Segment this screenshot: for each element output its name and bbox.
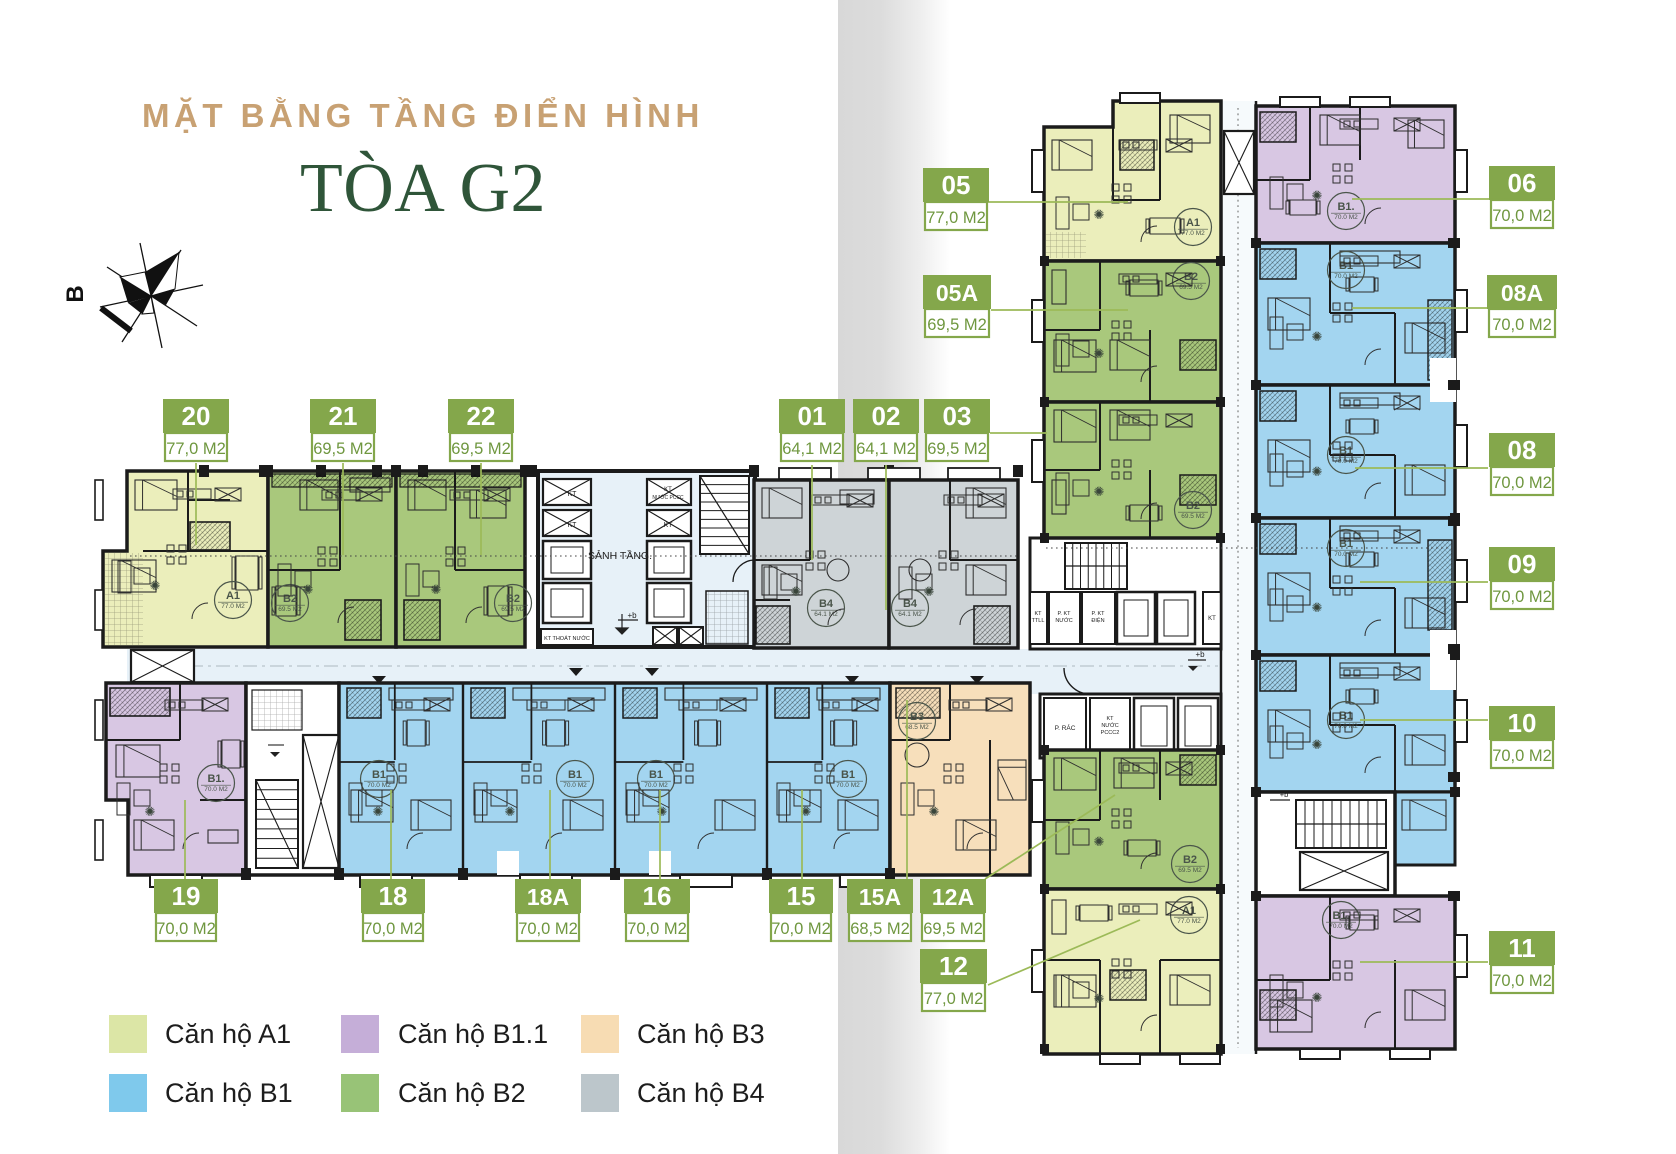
svg-text:70.0 M2: 70.0 M2 (1334, 723, 1358, 730)
svg-text:B1: B1 (568, 769, 582, 781)
svg-text:64,1 M2: 64,1 M2 (856, 440, 916, 458)
svg-text:21: 21 (329, 401, 358, 431)
svg-text:SẢNH TẦNG.: SẢNH TẦNG. (588, 549, 652, 562)
svg-text:B1: B1 (841, 769, 855, 781)
svg-text:P. KT: P. KT (1091, 611, 1105, 617)
svg-text:✺: ✺ (657, 804, 668, 819)
svg-text:✺: ✺ (1094, 346, 1105, 361)
svg-text:70.0 M2: 70.0 M2 (204, 786, 228, 793)
svg-text:77.0 M2: 77.0 M2 (221, 603, 245, 610)
svg-text:12: 12 (939, 951, 968, 981)
svg-text:18: 18 (379, 881, 408, 911)
svg-text:19: 19 (172, 881, 201, 911)
svg-text:✺: ✺ (1312, 600, 1323, 615)
svg-text:70,0 M2: 70,0 M2 (1492, 972, 1552, 990)
svg-text:70.0 M2: 70.0 M2 (644, 782, 668, 789)
svg-text:B2: B2 (283, 593, 297, 605)
svg-text:KT: KT (1208, 616, 1216, 622)
svg-text:09: 09 (1508, 549, 1537, 579)
svg-text:70,0 M2: 70,0 M2 (1492, 747, 1552, 765)
svg-text:70.0 M2: 70.0 M2 (563, 782, 587, 789)
svg-text:+b: +b (1280, 790, 1289, 799)
svg-text:20: 20 (182, 401, 211, 431)
svg-text:A1: A1 (1186, 217, 1200, 229)
svg-text:05A: 05A (936, 280, 978, 306)
svg-text:70,0 M2: 70,0 M2 (1492, 316, 1552, 334)
svg-text:70,0 M2: 70,0 M2 (363, 920, 423, 938)
svg-text:KT THOÁT NƯỚC: KT THOÁT NƯỚC (544, 635, 590, 642)
svg-text:NƯỚC: NƯỚC (1055, 617, 1072, 624)
svg-text:B1: B1 (372, 769, 386, 781)
svg-text:✺: ✺ (505, 804, 516, 819)
svg-text:✺: ✺ (1312, 990, 1323, 1005)
svg-text:✺: ✺ (150, 578, 161, 593)
svg-text:77,0 M2: 77,0 M2 (924, 990, 984, 1008)
svg-text:B1: B1 (1339, 445, 1353, 457)
svg-text:A1: A1 (226, 590, 240, 602)
svg-text:✺: ✺ (1312, 737, 1323, 752)
svg-text:69,5 M2: 69,5 M2 (451, 440, 511, 458)
svg-text:69.5 M2: 69.5 M2 (501, 606, 525, 613)
svg-text:06: 06 (1508, 168, 1537, 198)
svg-text:70,0 M2: 70,0 M2 (156, 920, 216, 938)
svg-text:70.0 M2: 70.0 M2 (836, 782, 860, 789)
svg-text:B1.: B1. (1337, 201, 1354, 213)
svg-text:69.5 M2: 69.5 M2 (1181, 513, 1205, 520)
svg-text:PCCC2: PCCC2 (1101, 730, 1120, 736)
svg-text:77,0 M2: 77,0 M2 (166, 440, 226, 458)
svg-text:NƯỚC PCCC: NƯỚC PCCC (652, 494, 684, 501)
svg-text:✺: ✺ (929, 804, 940, 819)
svg-text:B3: B3 (910, 711, 924, 723)
svg-text:B4: B4 (819, 598, 834, 610)
svg-text:P. RÁC: P. RÁC (1055, 723, 1076, 732)
svg-text:69,5 M2: 69,5 M2 (927, 440, 987, 458)
svg-text:03: 03 (943, 401, 972, 431)
svg-text:08A: 08A (1501, 280, 1543, 306)
svg-text:B1: B1 (649, 769, 663, 781)
svg-text:✺: ✺ (924, 584, 935, 599)
svg-text:✺: ✺ (1312, 188, 1323, 203)
svg-text:70.0 M2: 70.0 M2 (1334, 273, 1358, 280)
svg-text:08: 08 (1508, 435, 1537, 465)
svg-text:64,1 M2: 64,1 M2 (782, 440, 842, 458)
svg-text:KT: KT (1034, 611, 1042, 617)
svg-text:70,0 M2: 70,0 M2 (1492, 207, 1552, 225)
svg-text:02: 02 (872, 401, 901, 431)
svg-text:NƯỚC: NƯỚC (1101, 722, 1118, 729)
svg-text:B2: B2 (1186, 500, 1200, 512)
svg-text:B2: B2 (506, 593, 520, 605)
svg-text:70.0 M2: 70.0 M2 (1329, 923, 1353, 930)
svg-text:B2: B2 (1183, 854, 1197, 866)
svg-text:+b: +b (627, 611, 637, 620)
svg-text:✺: ✺ (145, 804, 156, 819)
svg-text:15: 15 (787, 881, 816, 911)
svg-text:✺: ✺ (431, 582, 442, 597)
svg-text:KT: KT (568, 491, 578, 498)
svg-text:68,5 M2: 68,5 M2 (850, 920, 910, 938)
svg-text:10: 10 (1508, 708, 1537, 738)
svg-text:✺: ✺ (1312, 329, 1323, 344)
svg-text:✺: ✺ (1094, 834, 1105, 849)
svg-text:KT: KT (664, 522, 674, 529)
svg-text:64.1 M2: 64.1 M2 (898, 611, 922, 618)
svg-text:✺: ✺ (1094, 484, 1105, 499)
svg-text:✺: ✺ (1094, 207, 1105, 222)
svg-text:70,0 M2: 70,0 M2 (518, 920, 578, 938)
svg-text:18A: 18A (527, 884, 569, 910)
svg-text:11: 11 (1508, 933, 1536, 963)
svg-text:B1.: B1. (207, 773, 224, 785)
svg-text:77.0 M2: 77.0 M2 (1177, 918, 1201, 925)
svg-text:22: 22 (467, 401, 496, 431)
svg-text:68.5 M2: 68.5 M2 (905, 724, 929, 731)
svg-text:✺: ✺ (303, 582, 314, 597)
svg-text:69,5 M2: 69,5 M2 (313, 440, 373, 458)
svg-text:16: 16 (643, 881, 672, 911)
svg-text:12A: 12A (932, 884, 974, 910)
svg-text:69,5 M2: 69,5 M2 (923, 920, 983, 938)
svg-text:ĐIỆN: ĐIỆN (1091, 616, 1104, 624)
svg-text:77,0 M2: 77,0 M2 (926, 209, 986, 227)
svg-text:KT: KT (664, 487, 672, 493)
svg-text:✺: ✺ (791, 584, 802, 599)
svg-text:01: 01 (798, 401, 827, 431)
svg-text:70,0 M2: 70,0 M2 (627, 920, 687, 938)
svg-text:15A: 15A (859, 884, 901, 910)
svg-text:B4: B4 (903, 598, 918, 610)
svg-text:70,0 M2: 70,0 M2 (771, 920, 831, 938)
svg-text:70,0 M2: 70,0 M2 (1492, 474, 1552, 492)
svg-text:✺: ✺ (1094, 991, 1105, 1006)
svg-text:70.0 M2: 70.0 M2 (1334, 214, 1358, 221)
svg-text:70.0 M2: 70.0 M2 (1334, 551, 1358, 558)
svg-text:69.5 M2: 69.5 M2 (278, 606, 302, 613)
svg-text:+b: +b (1195, 650, 1205, 659)
svg-text:✺: ✺ (373, 804, 384, 819)
svg-text:TTLL: TTLL (1032, 618, 1045, 624)
svg-text:KT: KT (568, 522, 578, 529)
svg-text:✺: ✺ (1312, 464, 1323, 479)
svg-text:05: 05 (942, 170, 971, 200)
svg-text:77.0 M2: 77.0 M2 (1181, 230, 1205, 237)
svg-text:69,5 M2: 69,5 M2 (927, 316, 987, 334)
svg-text:70,0 M2: 70,0 M2 (1492, 588, 1552, 606)
svg-text:69.5 M2: 69.5 M2 (1178, 867, 1202, 874)
svg-text:KT: KT (1106, 716, 1114, 722)
svg-text:P. KT: P. KT (1057, 611, 1071, 617)
